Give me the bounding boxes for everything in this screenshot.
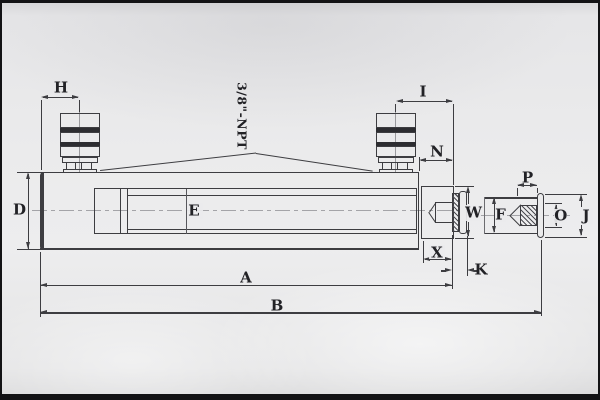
npt-annotation: 3/8"-NPT xyxy=(234,82,247,150)
right-port-band-2 xyxy=(376,132,417,143)
dim-j-arrow-down xyxy=(579,229,583,236)
rod-thread-section xyxy=(452,193,460,232)
dim-h-arrow-right xyxy=(72,95,79,99)
coupler-sleeve-end xyxy=(484,197,485,234)
dim-label-d: D xyxy=(13,203,26,218)
dim-label-o: O xyxy=(554,208,567,223)
dim-b-arrow-left xyxy=(40,310,47,314)
dim-label-h: H xyxy=(54,81,68,96)
dim-h-ext-right xyxy=(79,100,80,112)
dim-a-arrow-right xyxy=(445,283,452,287)
dim-w-arrow-up xyxy=(466,186,470,193)
dim-b-arrow-right xyxy=(534,310,541,314)
gland-bore-shoulder xyxy=(435,202,436,224)
dim-n-ext-left xyxy=(419,157,420,172)
dim-p-ext-left xyxy=(517,188,518,196)
right-port-band-3 xyxy=(376,146,417,157)
dim-p-ext-right xyxy=(537,188,538,193)
dim-k-arrow-right xyxy=(467,268,474,272)
dim-j-arrow-up xyxy=(579,194,583,201)
drawing-sheet: 3/8"-NPT H I N W X xyxy=(0,0,600,400)
left-port-seat xyxy=(63,169,97,172)
gland-bore-bottom xyxy=(436,222,453,223)
dim-a-arrow-left xyxy=(40,283,47,287)
left-port-band-2 xyxy=(60,132,101,143)
dim-n-arrow-left xyxy=(419,158,426,162)
dim-h-arrow-left xyxy=(41,95,48,99)
left-port-band-3 xyxy=(60,146,101,157)
dim-i-ext-right xyxy=(453,104,454,185)
piston-line-1 xyxy=(120,189,121,234)
dim-label-j: J xyxy=(582,208,589,223)
dim-ab-ext-left xyxy=(40,252,41,317)
coupler-flange xyxy=(537,193,545,238)
dim-label-f: F xyxy=(495,207,506,222)
frame-bottom xyxy=(0,394,600,400)
dim-i-line xyxy=(398,101,452,102)
dim-i-arrow-left xyxy=(396,99,403,103)
dim-o-ext-bottom xyxy=(545,227,562,228)
dim-h-ext-left xyxy=(41,100,42,171)
dim-label-w: W xyxy=(465,205,482,220)
dim-n-arrow-right xyxy=(446,158,453,162)
rod-top-line xyxy=(127,195,417,196)
dim-d-arrow-up xyxy=(26,172,30,179)
dim-f-arrow-up xyxy=(492,197,496,204)
body-right-edge xyxy=(418,172,420,249)
dim-f-arrow-down xyxy=(492,226,496,233)
dim-b-line xyxy=(40,312,542,313)
dim-label-b: B xyxy=(271,298,284,313)
body-left-edge xyxy=(40,172,44,251)
dim-label-e: E xyxy=(188,204,199,219)
dim-k-arrow-left xyxy=(445,268,452,272)
dim-d-line xyxy=(28,174,29,249)
dim-d-arrow-down xyxy=(26,242,30,249)
dim-i-ext-left xyxy=(395,104,396,112)
rod-bottom-line xyxy=(127,229,417,230)
dim-label-i: I xyxy=(419,85,426,100)
right-port-seat xyxy=(379,169,413,172)
dim-label-n: N xyxy=(430,144,444,159)
coupler-sleeve-bottom xyxy=(484,233,537,234)
dim-b-ext-right xyxy=(541,240,542,317)
dim-i-arrow-right xyxy=(446,99,453,103)
frame-left xyxy=(0,0,2,400)
coupler-thread-bore xyxy=(520,205,538,226)
dim-label-a: A xyxy=(240,271,252,286)
frame-top xyxy=(0,0,600,3)
body-bottom-edge xyxy=(40,248,419,250)
dim-j-ext-bottom xyxy=(545,237,587,238)
right-port-band-1 xyxy=(376,113,417,128)
dim-label-k: K xyxy=(474,263,487,278)
dim-x-ext-right xyxy=(452,235,453,289)
dim-w-ext-bottom xyxy=(455,238,475,239)
gland-bore-top xyxy=(436,202,453,203)
dim-x-arrow-right xyxy=(445,257,452,261)
left-port-band-1 xyxy=(60,113,101,128)
dim-w-ext-top xyxy=(455,186,475,187)
dim-label-p: P xyxy=(522,170,533,185)
dim-label-x: X xyxy=(431,245,443,260)
gland-block xyxy=(421,186,454,239)
